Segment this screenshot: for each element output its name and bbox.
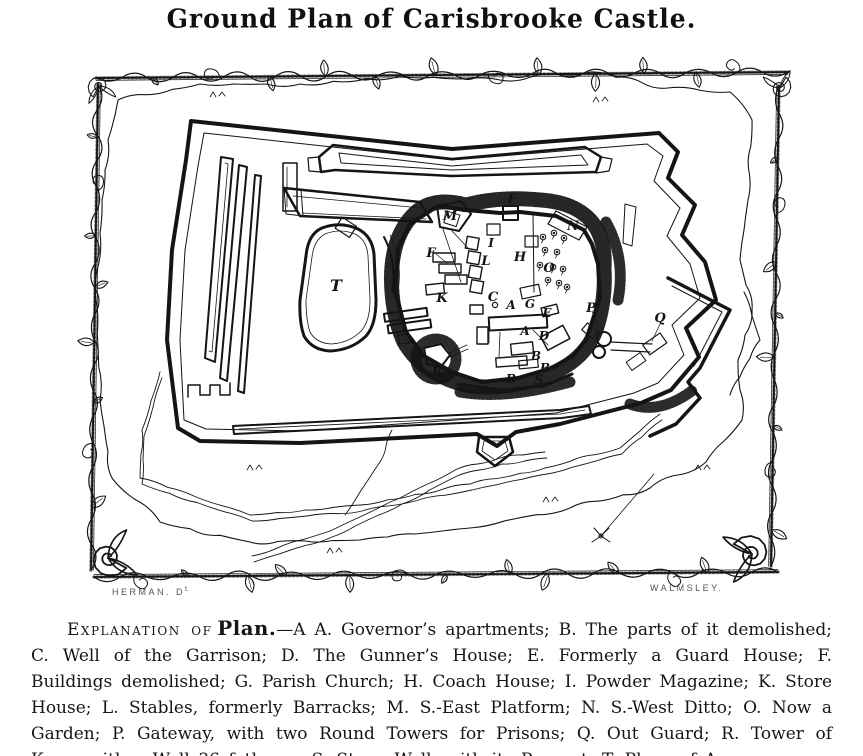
garden-tree (564, 284, 570, 293)
grass-tuft (593, 97, 608, 102)
plan-label-f-5: F (425, 246, 436, 261)
plan-label-a-16: A (519, 324, 529, 338)
garden-tree (542, 247, 548, 256)
plan-label-d-17: D (538, 329, 550, 343)
field-roads (140, 372, 662, 562)
corner-flourish (721, 535, 767, 582)
grass-tuft (247, 465, 262, 470)
garden-tree (560, 266, 566, 275)
vine-leaf (77, 336, 95, 347)
grass-tuft (327, 548, 342, 553)
plan-label-b-20: B (505, 372, 516, 386)
plan-label-o-8: O (543, 261, 555, 276)
explanation-body: —A A. Governor’s apartments; B. The part… (31, 620, 832, 756)
plan-label-n-3: N (566, 219, 580, 234)
plan-label-l-6: L (480, 254, 490, 269)
outer-ramparts (167, 121, 730, 466)
garden-tree (537, 262, 543, 271)
plan-label-k-9: K (435, 291, 448, 306)
engraving-plate: TMFNIFLHOKCAGEPQADBBBSR (0, 0, 863, 612)
garden-and-tufts (210, 92, 710, 553)
vine-leaf (244, 575, 255, 593)
garden-tree (540, 234, 546, 243)
plan-label-i-4: I (487, 236, 494, 250)
plan-label-h-7: H (513, 250, 527, 265)
plan-label-p-14: P (585, 301, 597, 316)
vine-leaf (321, 60, 329, 76)
book-page: Ground Plan of Carisbrooke Castle. (0, 0, 863, 756)
field-mark (592, 474, 654, 542)
plan-label-c-10: C (488, 290, 499, 305)
plan-label-a-11: A (505, 298, 515, 312)
engraver-credit-right: WALMSLEY. (650, 583, 724, 593)
castle-plan (167, 121, 730, 542)
plan-label-g-12: G (525, 297, 535, 311)
garden-tree (545, 277, 551, 286)
plan-label-e-13: E (541, 306, 552, 320)
explanation-plan-word: Plan. (217, 616, 276, 640)
grass-tuft (695, 465, 710, 470)
explanation-paragraph: Explanation ofPlan.—A A. Governor’s apar… (31, 615, 832, 756)
garden-tree (551, 230, 557, 239)
vine-border (77, 57, 791, 593)
plan-label-t-0: T (330, 276, 343, 295)
terrain-contours (95, 72, 760, 544)
plan-label-f-2: F (506, 192, 517, 207)
plan-label-r-22: R (431, 365, 443, 380)
engraver-credit-left: HERMAN. Dt. (112, 586, 189, 597)
garden-tree (561, 235, 567, 244)
garden-tree (554, 249, 560, 258)
explanation-lead: Explanation of (67, 620, 212, 640)
grass-tuft (210, 92, 225, 97)
plan-label-q-15: Q (654, 311, 666, 326)
vine-leaf (267, 76, 276, 92)
vine-leaf (345, 575, 354, 592)
plan-label-s-21: S (534, 373, 543, 388)
garden-tree (556, 280, 562, 289)
grass-tuft (543, 497, 558, 502)
vine-leaf (428, 57, 439, 76)
corner-flourish (94, 530, 140, 577)
plan-label-m-1: M (442, 209, 458, 224)
